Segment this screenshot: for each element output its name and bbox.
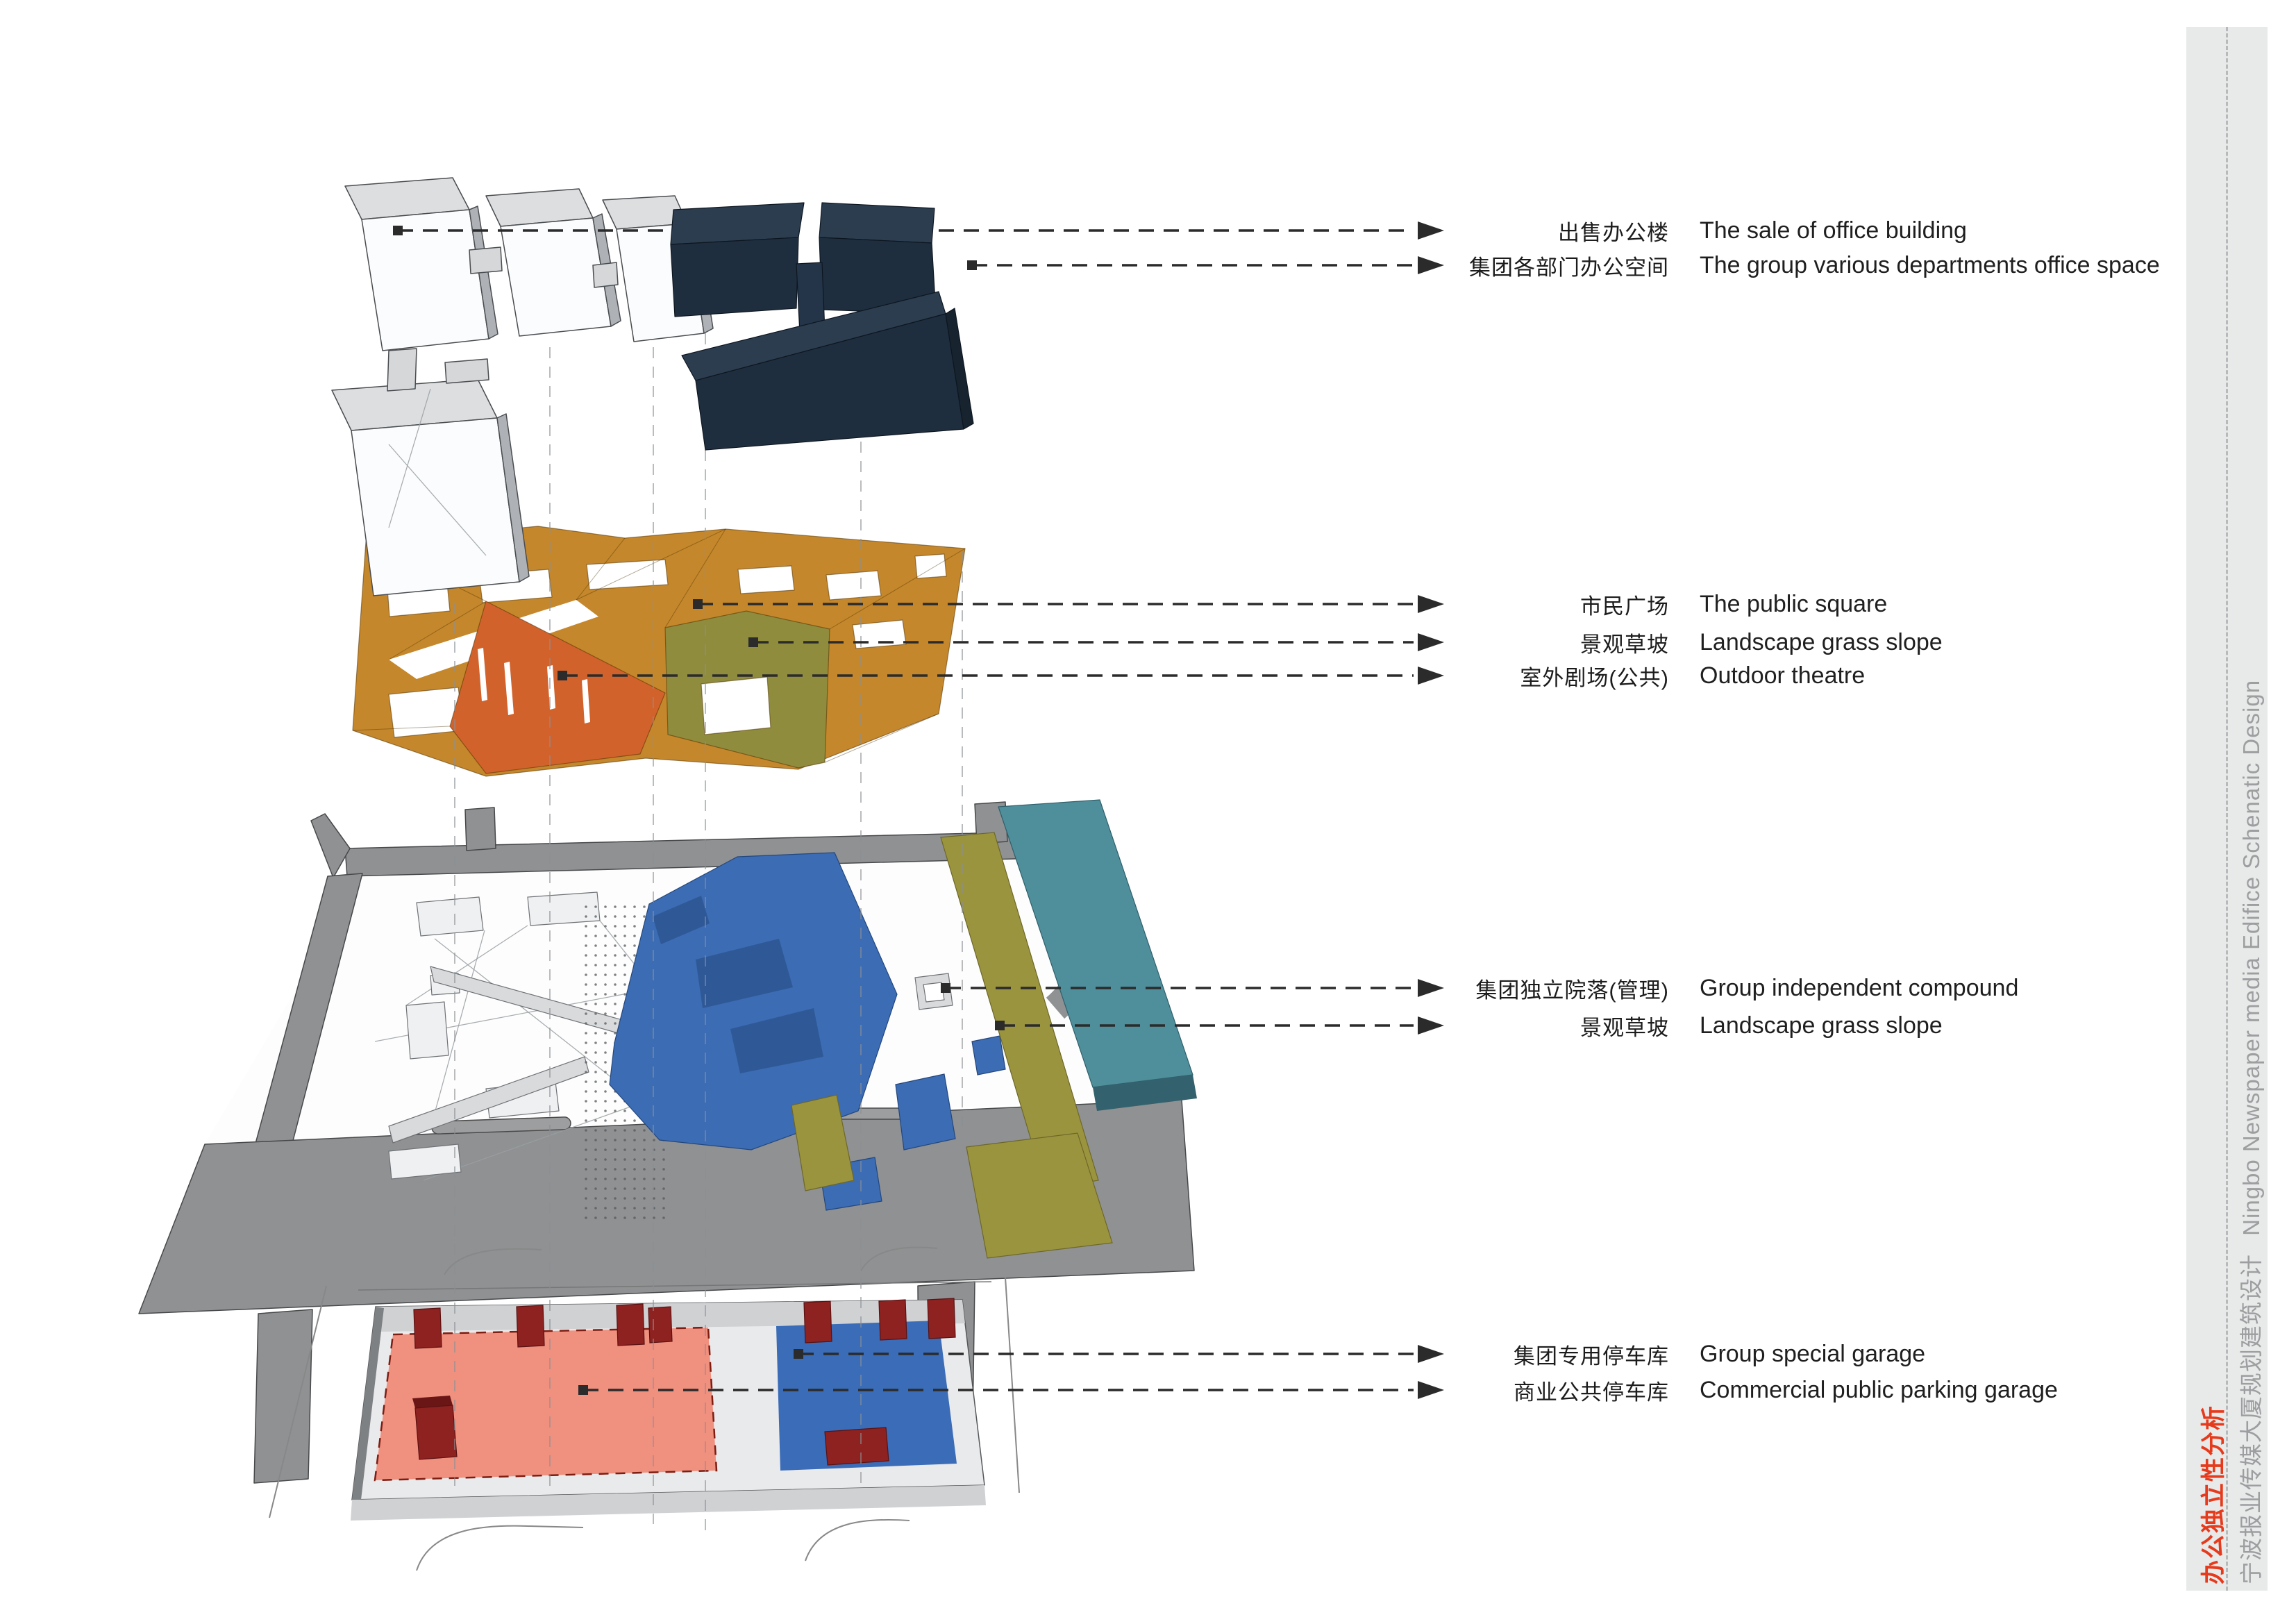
legend-row-group-compound: 集团独立院落(管理) Group independent compound — [1464, 971, 2283, 1005]
legend-row-group-garage: 集团专用停车库 Group special garage — [1464, 1337, 2283, 1371]
legend-label-cn: 集团专用停车库 — [1464, 1339, 1669, 1370]
white-office-towers — [332, 178, 713, 596]
legend-label-en: The public square — [1700, 591, 1887, 618]
sidewalk-curve — [417, 1526, 583, 1571]
legend-label-en: Outdoor theatre — [1700, 662, 1865, 689]
sidebar-title-vertical: 办公独立性分析 — [2194, 1405, 2229, 1584]
legend-label-en: Group independent compound — [1700, 975, 2018, 1002]
legend-row-public-square: 市民广场 The public square — [1464, 587, 2283, 621]
legend-label-en: The sale of office building — [1700, 217, 1967, 244]
leader-arrowheads — [1418, 221, 1444, 1399]
legend-row-group-departments: 集团各部门办公空间 The group various departments … — [1464, 249, 2283, 282]
legend-label-en: Landscape grass slope — [1700, 629, 1943, 656]
legend-row-outdoor-theatre: 室外剧场(公共) Outdoor theatre — [1464, 659, 2283, 692]
legend-label-en: The group various departments office spa… — [1700, 252, 2160, 279]
legend-row-grass-slope-roof: 景观草坡 Landscape grass slope — [1464, 626, 2283, 659]
legend-label-cn: 集团各部门办公空间 — [1464, 250, 1669, 281]
exploded-axonometric-diagram-page: 出售办公楼 The sale of office building 集团各部门办… — [0, 0, 2296, 1624]
legend-label-cn: 景观草坡 — [1464, 1010, 1669, 1041]
legend-label-cn: 景观草坡 — [1464, 627, 1669, 658]
sidebar-subtitle-vertical: 宁波报业传媒大厦规划建筑设计 Ningbo Newspaper media Ed… — [2233, 680, 2266, 1584]
legend-label-en: Group special garage — [1700, 1341, 1925, 1368]
legend-label-cn: 集团独立院落(管理) — [1464, 973, 1669, 1004]
project-name-en: Ningbo Newspaper media Edifice Schenatic… — [2238, 680, 2264, 1236]
legend-label-cn: 室外剧场(公共) — [1464, 660, 1669, 692]
sidebar-dashed-divider — [2226, 27, 2228, 1591]
legend-label-cn: 出售办公楼 — [1464, 215, 1669, 246]
sidewalk-line — [1005, 1278, 1019, 1493]
blue-patch — [896, 1074, 955, 1150]
legend-label-en: Landscape grass slope — [1700, 1012, 1943, 1039]
navy-office-blocks — [671, 203, 973, 450]
legend-label-en: Commercial public parking garage — [1700, 1377, 2058, 1404]
legend-row-grass-slope-site: 景观草坡 Landscape grass slope — [1464, 1009, 2283, 1042]
legend-row-sale-office: 出售办公楼 The sale of office building — [1464, 214, 2283, 247]
legend-label-cn: 商业公共停车库 — [1464, 1375, 1669, 1406]
project-name-cn: 宁波报业传媒大厦规划建筑设计 — [2238, 1254, 2264, 1584]
blue-patch — [972, 1036, 1005, 1075]
legend-row-commercial-garage: 商业公共停车库 Commercial public parking garage — [1464, 1373, 2283, 1407]
sidewalk-curve — [805, 1520, 910, 1561]
roof-grass-hole — [701, 677, 771, 735]
legend-label-cn: 市民广场 — [1464, 589, 1669, 620]
